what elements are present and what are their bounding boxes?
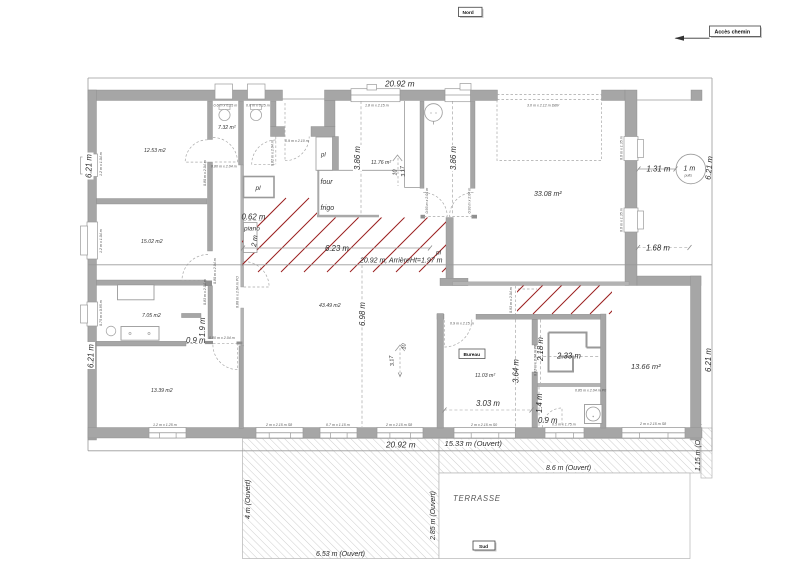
svg-text:20.92 m, ArrièreHt=1.97 m: 20.92 m, ArrièreHt=1.97 m	[359, 258, 443, 265]
svg-text:0.80 m x 2.04 m PO: 0.80 m x 2.04 m PO	[236, 276, 240, 308]
svg-text:15.33 m (Ouvert): 15.33 m (Ouvert)	[445, 439, 503, 448]
svg-text:20.92 m: 20.92 m	[384, 80, 415, 89]
svg-text:0.6 m x 1.35 m: 0.6 m x 1.35 m	[620, 208, 624, 232]
svg-text:2.33 m: 2.33 m	[556, 352, 581, 361]
svg-text:11.76 m²: 11.76 m²	[371, 160, 391, 166]
svg-text:0.83 m x 2.04 m: 0.83 m x 2.04 m	[203, 279, 207, 305]
svg-text:1.31 m: 1.31 m	[647, 165, 671, 174]
svg-text:3.86 m: 3.86 m	[449, 146, 458, 170]
svg-text:6.23 m: 6.23 m	[325, 244, 349, 253]
svg-text:11.03 m²: 11.03 m²	[475, 373, 495, 379]
svg-text:0.62 m: 0.62 m	[242, 213, 266, 222]
svg-text:pl: pl	[255, 185, 262, 192]
svg-text:0.80 m x 2.04 m: 0.80 m x 2.04 m	[203, 160, 207, 186]
svg-text:1.4 m: 1.4 m	[535, 393, 544, 413]
svg-text:0.75 m x 0.95 m: 0.75 m x 0.95 m	[99, 300, 103, 326]
svg-text:1.68 m: 1.68 m	[646, 244, 670, 253]
svg-text:12.53 m2: 12.53 m2	[144, 148, 166, 154]
svg-text:frigo: frigo	[321, 205, 335, 212]
svg-text:6.21 m: 6.21 m	[85, 154, 94, 178]
svg-text:43.49 m2: 43.49 m2	[319, 303, 341, 309]
svg-text:piano: piano	[243, 226, 260, 233]
svg-text:6.98 m: 6.98 m	[358, 302, 367, 326]
svg-text:puits: puits	[684, 174, 693, 178]
svg-text:0.80 m x 2.04 m: 0.80 m x 2.04 m	[211, 165, 237, 169]
svg-text:pl: pl	[320, 153, 326, 159]
svg-text:13.39 m2: 13.39 m2	[151, 388, 173, 394]
svg-text:0.80 m x 2.04 m: 0.80 m x 2.04 m	[213, 258, 217, 284]
svg-text:Nord: Nord	[463, 10, 474, 16]
svg-text:0.9 m x 2.15 m: 0.9 m x 2.15 m	[450, 322, 474, 326]
svg-text:6.53 m (Ouvert): 6.53 m (Ouvert)	[316, 551, 365, 558]
svg-text:0.6 m x 0.25 m: 0.6 m x 0.25 m	[246, 103, 270, 107]
svg-text:8.6 m (Ouvert): 8.6 m (Ouvert)	[546, 465, 591, 472]
svg-text:2 m x 2.15 m S8: 2 m x 2.15 m S8	[385, 423, 412, 427]
svg-text:1.8 m x 2.15 m: 1.8 m x 2.15 m	[365, 103, 389, 107]
svg-text:0.82 m x 2.04 m: 0.82 m x 2.04 m	[271, 140, 275, 166]
svg-text:2 m x 2.15 m S0: 2 m x 2.15 m S0	[470, 423, 497, 427]
svg-text:1 m: 1 m	[684, 166, 696, 173]
svg-text:0.93 m x 2.04 m: 0.93 m x 2.04 m	[468, 188, 472, 214]
svg-text:pl: pl	[435, 250, 442, 257]
svg-text:4 m (Ouvert): 4 m (Ouvert)	[245, 480, 252, 519]
svg-text:7.32 m²: 7.32 m²	[218, 125, 236, 131]
svg-text:10: 10	[402, 342, 408, 349]
svg-text:3.64 m: 3.64 m	[512, 359, 521, 383]
svg-text:3.0 m x 2.12 m DBV: 3.0 m x 2.12 m DBV	[527, 104, 560, 108]
svg-text:0.6 m x 1.35 m: 0.6 m x 1.35 m	[620, 136, 624, 160]
svg-text:0.9 m x 2.10 m: 0.9 m x 2.10 m	[285, 139, 309, 143]
svg-text:0.7 m x 1.15 m: 0.7 m x 1.15 m	[326, 423, 350, 427]
svg-text:20.92 m: 20.92 m	[385, 441, 416, 450]
svg-text:15.02 m2: 15.02 m2	[141, 239, 163, 245]
svg-text:Accès chemin: Accès chemin	[715, 30, 751, 36]
svg-text:0.80 m x 2.04 m: 0.80 m x 2.04 m	[209, 336, 235, 340]
svg-text:0.85 m x 2.04 m P0: 0.85 m x 2.04 m P0	[575, 389, 606, 393]
svg-text:3.86 m: 3.86 m	[353, 146, 362, 170]
svg-text:1.2 m x 1.25 m: 1.2 m x 1.25 m	[153, 423, 177, 427]
svg-text:2.85 m (Ouvert): 2.85 m (Ouvert)	[430, 491, 437, 541]
svg-text:TERRASSE: TERRASSE	[453, 494, 501, 503]
svg-text:6.21 m: 6.21 m	[704, 348, 713, 372]
svg-text:33.08 m²: 33.08 m²	[534, 191, 562, 198]
svg-text:0.5 m x 1.75 m: 0.5 m x 1.75 m	[552, 423, 576, 427]
svg-text:1.2 m x 1.04 m: 1.2 m x 1.04 m	[99, 152, 103, 176]
svg-text:Bureau: Bureau	[464, 352, 481, 358]
svg-text:four: four	[321, 179, 334, 186]
svg-text:0.93 m x 2.04 m: 0.93 m x 2.04 m	[509, 287, 513, 313]
svg-text:1.9 m: 1.9 m	[198, 317, 207, 337]
svg-text:10: 10	[393, 168, 399, 175]
svg-text:2 m x 2.15 m S8: 2 m x 2.15 m S8	[639, 422, 666, 426]
svg-text:3.03 m: 3.03 m	[476, 399, 500, 408]
svg-text:1.2 m x 1.04 m: 1.2 m x 1.04 m	[99, 229, 103, 253]
svg-text:0.93 m x 2.04 m: 0.93 m x 2.04 m	[425, 188, 429, 214]
svg-text:13.66 m²: 13.66 m²	[631, 362, 661, 371]
svg-text:0.82 m x 2.04 m P0: 0.82 m x 2.04 m P0	[534, 345, 538, 376]
svg-text:2 m x 2.15 m S8: 2 m x 2.15 m S8	[265, 423, 292, 427]
svg-text:6.21 m: 6.21 m	[87, 344, 96, 368]
svg-text:0.6 m x 0.25 m: 0.6 m x 0.25 m	[214, 103, 238, 107]
svg-text:7.05 m2: 7.05 m2	[142, 313, 161, 319]
svg-text:Sud: Sud	[479, 544, 488, 550]
